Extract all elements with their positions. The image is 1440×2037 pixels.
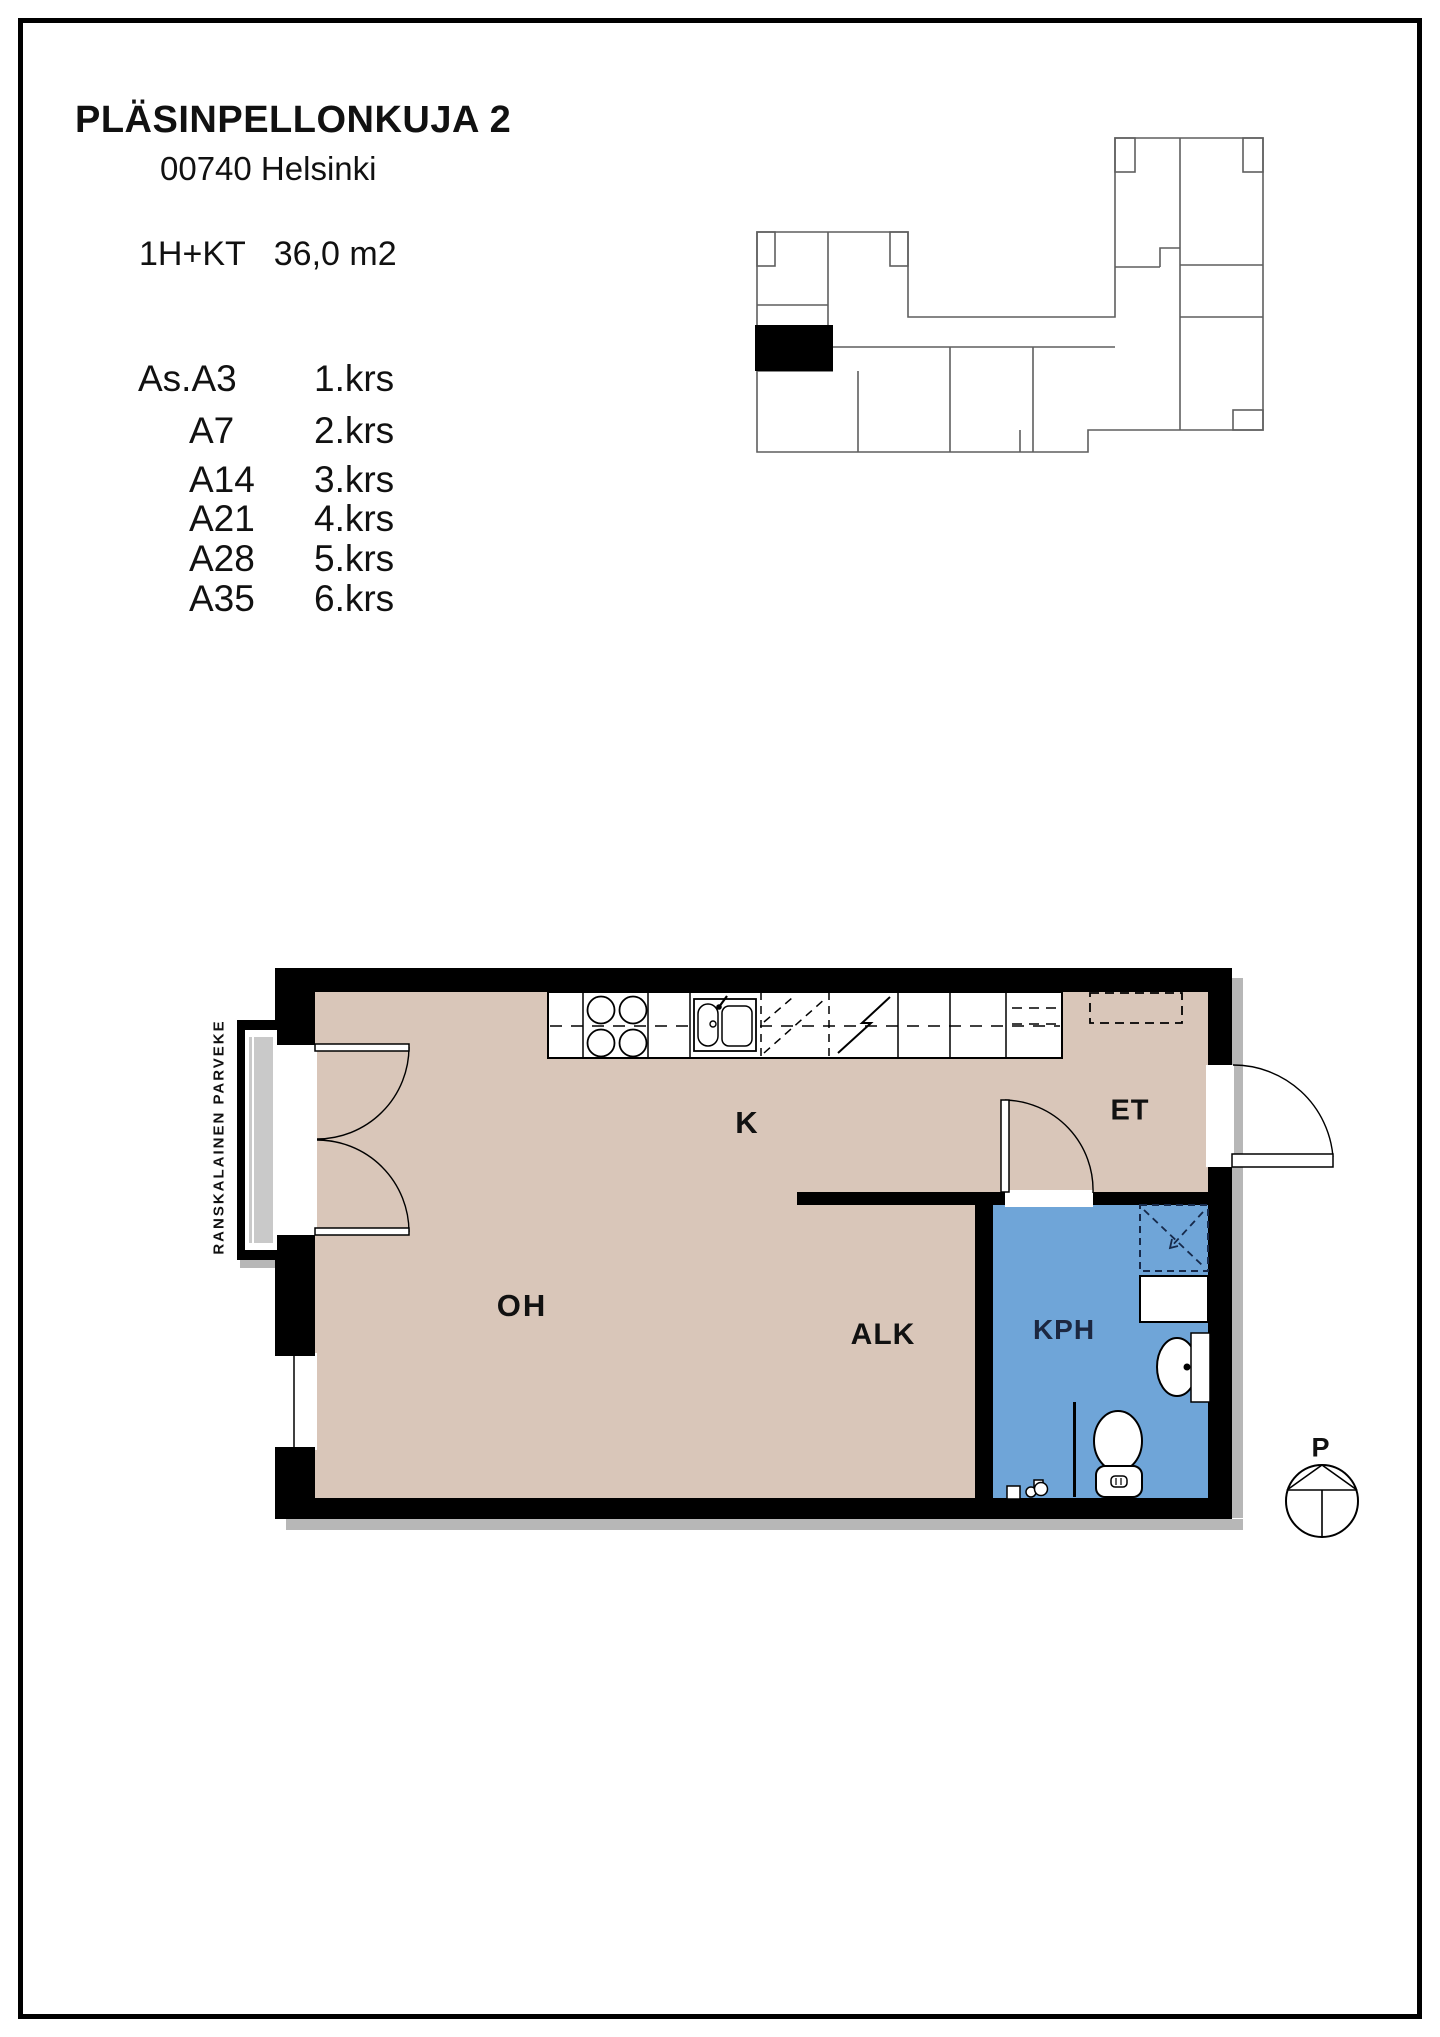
towel-rail	[1073, 1402, 1076, 1497]
wall-right	[1208, 968, 1232, 1518]
kitchen-counter	[548, 992, 1062, 1058]
wall-bathroom-north-a	[797, 1192, 1005, 1205]
floor-plan-page: { "header": { "title": "PLÄSINPELLONKUJA…	[0, 0, 1440, 2037]
toilet-icon	[1094, 1411, 1142, 1497]
bathroom-counter	[1140, 1276, 1208, 1322]
room-label-kitchen: K	[735, 1105, 758, 1141]
room-label-living-room: OH	[497, 1288, 548, 1324]
key-plan	[755, 138, 1263, 452]
compass-north-label: P	[1311, 1433, 1330, 1464]
wall-bottom	[275, 1498, 1232, 1519]
key-plan-highlight	[755, 325, 833, 371]
bathroom-door-opening	[1005, 1190, 1093, 1207]
wall-top	[275, 968, 1232, 992]
room-label-alcove: ALK	[851, 1318, 916, 1352]
wall-bathroom-north-b	[1093, 1192, 1208, 1205]
entry-door	[1232, 1065, 1333, 1167]
sink-icon	[694, 996, 756, 1051]
window-opening	[273, 1353, 317, 1450]
room-label-entry: ET	[1110, 1095, 1149, 1128]
entry-door-opening	[1206, 1065, 1234, 1167]
wall-bathroom-west	[975, 1205, 993, 1498]
room-label-bathroom: KPH	[1033, 1314, 1095, 1346]
key-plan-outline	[757, 138, 1263, 452]
floor-plan-body	[237, 968, 1333, 1530]
balcony-door-opening	[273, 1045, 317, 1235]
french-balcony	[237, 1020, 277, 1260]
washbasin-icon	[1157, 1333, 1210, 1402]
balcony-label: RANSKALAINEN PARVEKE	[211, 1019, 228, 1254]
compass-icon	[1286, 1465, 1358, 1537]
